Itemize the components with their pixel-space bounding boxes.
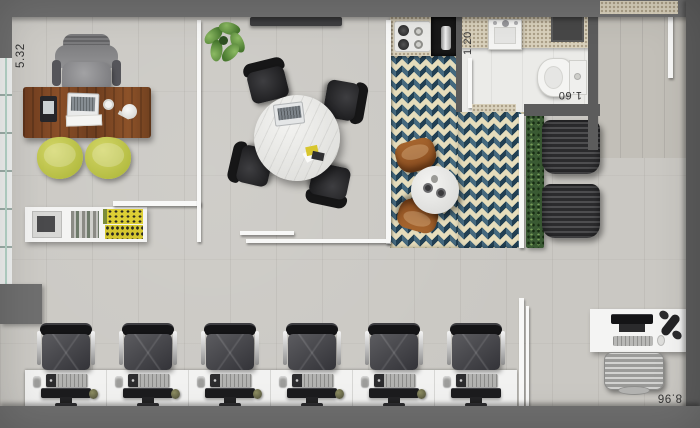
keyboard (46, 374, 88, 387)
chair-arm (337, 331, 341, 365)
reception-monitor-base (619, 324, 645, 332)
desk-accessory (89, 389, 98, 399)
chair-arm (419, 331, 423, 365)
keyboard (374, 374, 416, 387)
chair-arm (91, 331, 95, 365)
desk-accessory (417, 389, 426, 399)
workstation (189, 370, 271, 407)
workstation (107, 370, 189, 407)
flush-button (574, 73, 581, 80)
tap (514, 21, 518, 25)
office-partition (113, 201, 201, 206)
keyboard-logo (456, 374, 466, 387)
bathroom-threshold (472, 104, 516, 112)
lounge-armchair (542, 184, 600, 238)
cup (436, 188, 446, 198)
chair-seat (124, 334, 172, 370)
west-window (0, 58, 12, 284)
chair-arm (365, 331, 369, 365)
reception-chair (604, 352, 664, 390)
desk-phone (115, 376, 123, 387)
reception-keyboard (613, 336, 653, 346)
task-chair (37, 323, 95, 371)
desk-phone (197, 376, 205, 387)
printer-screen (37, 216, 55, 232)
workstation-row (25, 370, 517, 407)
pantry-tile-floor-extension (458, 110, 524, 248)
desk-accessory (253, 389, 262, 399)
task-chair (119, 323, 177, 371)
chair-arm (447, 331, 451, 365)
chair-seat (42, 334, 90, 370)
north-wall (0, 0, 700, 17)
south-wall (0, 406, 700, 428)
jar (431, 175, 438, 183)
keyboard-logo (46, 374, 56, 387)
keyboard-logo (292, 374, 302, 387)
keyboard (210, 374, 252, 387)
desk-accessory (335, 389, 344, 399)
desk-phone-screen (43, 101, 54, 114)
partition-wall-panel (526, 306, 529, 414)
partition-wall (519, 298, 524, 412)
task-chair (283, 323, 341, 371)
bottle (441, 26, 451, 50)
workstation (353, 370, 435, 407)
chair-arm (37, 331, 41, 365)
sink-basin (494, 27, 516, 44)
desk-phone (361, 376, 369, 387)
bathroom-shelf (551, 15, 584, 42)
yellow-magazine (103, 209, 143, 224)
keyboard-logo (374, 374, 384, 387)
burner (414, 40, 423, 49)
chair-arm (255, 331, 259, 365)
west-wall-upper (0, 0, 12, 58)
entrance-mat (600, 1, 678, 14)
desk-phone (33, 376, 41, 387)
bathroom-east-wall (588, 0, 598, 150)
window-glass (5, 58, 7, 284)
burner (414, 27, 423, 36)
toilet-seat (544, 66, 563, 89)
burner (398, 39, 409, 50)
dimension-bathroom-width: 1.20 (463, 17, 474, 55)
burner (398, 25, 409, 36)
task-chair (447, 323, 505, 371)
task-chair (201, 323, 259, 371)
chair-arm (119, 331, 123, 365)
meeting-room-south-wall (246, 239, 390, 243)
coffee-mug (103, 99, 114, 110)
meeting-room-west-wall (197, 20, 201, 242)
chair-seat (370, 334, 418, 370)
mouse (657, 335, 665, 346)
desk-accessory (171, 389, 180, 399)
chair-arm (173, 331, 177, 365)
dimension-bottom-width: 8.96 (642, 391, 682, 403)
yellow-magazine (105, 225, 143, 239)
pantry-table (411, 166, 459, 214)
east-wall (686, 0, 700, 428)
executive-chair-arm-left (52, 60, 61, 86)
chair-arm (201, 331, 205, 365)
desk-lamp (122, 104, 137, 119)
plant (203, 22, 249, 62)
dimension-left-depth: 5.32 (16, 22, 28, 68)
media-console (250, 17, 342, 26)
laptop-keyboard (71, 97, 95, 112)
keyboard-logo (210, 374, 220, 387)
chair-arm (501, 331, 505, 365)
dimension-bathroom-depth: 1.60 (548, 89, 582, 100)
plant-center (219, 36, 228, 45)
books (71, 211, 99, 238)
chair-seat (206, 334, 254, 370)
workstation (25, 370, 107, 407)
chair-seat (288, 334, 336, 370)
chair-arm (283, 331, 287, 365)
desk-phone (279, 376, 287, 387)
desk-phone (443, 376, 451, 387)
pantry-east-wall (519, 114, 524, 248)
west-wall-block (0, 284, 42, 324)
meeting-room-sliding-door (240, 231, 294, 235)
executive-chair-arm-right (112, 60, 121, 86)
faucet (502, 20, 509, 27)
meeting-room-east-wall (386, 20, 391, 244)
bathroom-door (468, 58, 472, 108)
cup (423, 183, 433, 193)
keyboard (292, 374, 334, 387)
papers (66, 114, 102, 126)
keyboard (128, 374, 170, 387)
chair-seat (452, 334, 500, 370)
workstation (435, 370, 517, 407)
keyboard-logo (128, 374, 138, 387)
keyboard (456, 374, 498, 387)
reception-monitor (611, 314, 653, 324)
task-chair (365, 323, 423, 371)
entrance-door (668, 12, 673, 78)
tap (493, 21, 497, 25)
office-floor-plan: 5.32 1.20 1.60 8.96 (0, 0, 700, 428)
workstation (271, 370, 353, 407)
